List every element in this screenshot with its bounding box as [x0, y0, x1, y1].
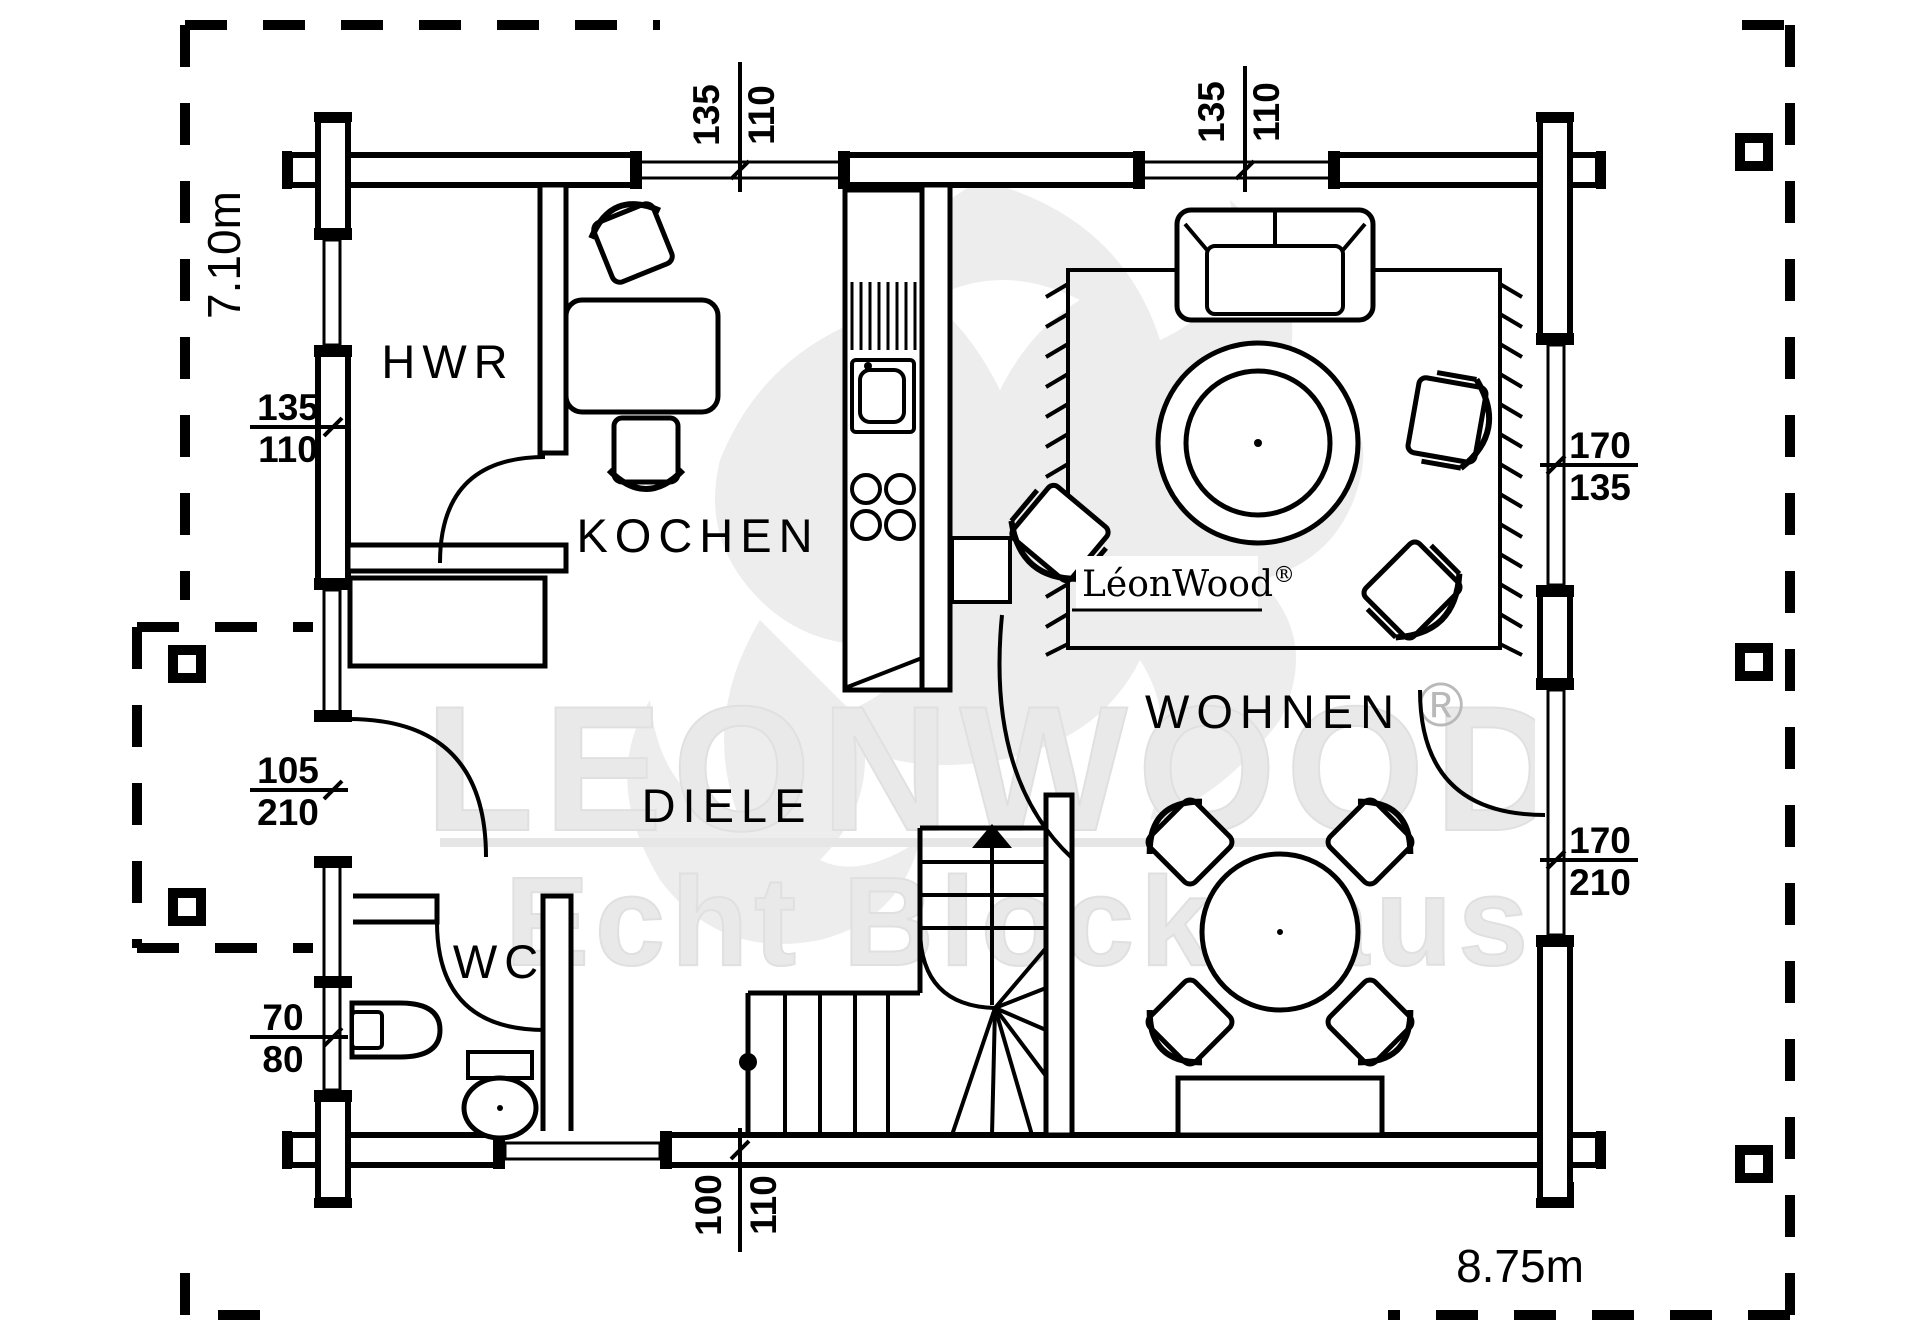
dim-height: 210 — [257, 792, 319, 833]
room-label-diele: DIELE — [642, 779, 813, 832]
post-marker — [1740, 138, 1768, 166]
dim-height: 80 — [262, 1039, 303, 1080]
kitchen-chair — [609, 418, 683, 489]
sofa — [1177, 210, 1373, 320]
sideboard — [1178, 1078, 1382, 1135]
wall-top — [290, 155, 1598, 185]
room-label-wohnen: WOHNEN — [1145, 685, 1401, 738]
wall-bottom — [290, 1135, 1598, 1165]
post-marker — [173, 893, 201, 921]
dim-width: 105 — [257, 750, 319, 791]
watermark-underline — [440, 838, 1390, 847]
room-label-wc: WC — [453, 935, 545, 988]
dim-left-window: 135 110 — [257, 387, 319, 470]
window-left-diele-2 — [324, 866, 340, 978]
wall-kochen-wohnen — [922, 185, 950, 690]
dim-height: 110 — [1246, 82, 1287, 142]
dim-width: 135 — [686, 84, 727, 146]
dim-width: 170 — [1569, 425, 1631, 466]
tv-board — [952, 538, 1010, 602]
stair-newel-post — [739, 1053, 757, 1071]
dim-width: 70 — [262, 997, 303, 1038]
dim-width: 135 — [257, 387, 319, 428]
hall-wardrobe — [350, 578, 545, 666]
wall-hwr-diele — [348, 545, 566, 571]
dim-height: 110 — [258, 429, 318, 470]
terrace-door-glazing — [1548, 690, 1564, 935]
dim-width: 135 — [1191, 81, 1232, 143]
overall-depth-label: 7.10m — [198, 191, 250, 319]
room-label-kochen: KOCHEN — [576, 509, 819, 562]
wall-wc-top — [348, 896, 437, 922]
kitchen-table — [566, 300, 718, 412]
overall-width-label: 8.75m — [1456, 1240, 1584, 1292]
round-rug — [1158, 343, 1358, 543]
kitchen-counter — [845, 190, 922, 690]
post-marker — [173, 650, 201, 678]
wall-wc-right — [543, 896, 571, 1135]
dim-height: 110 — [741, 85, 782, 145]
dim-width: 170 — [1569, 820, 1631, 861]
kitchen-sink-basin — [860, 370, 904, 422]
post-marker — [1740, 1150, 1768, 1178]
logo-registered-symbol: ® — [1273, 563, 1295, 588]
window-left-diele — [324, 590, 340, 712]
toilet-tank — [468, 1052, 532, 1078]
dim-height: 110 — [743, 1175, 784, 1235]
dim-right-window: 170 135 — [1569, 425, 1631, 508]
floor-plan-page: LEONWOOD Echt Blockhaus ® — [0, 0, 1920, 1344]
dim-height: 135 — [1569, 467, 1631, 508]
dim-wc-window: 70 80 — [262, 997, 303, 1080]
floor-plan-svg: LEONWOOD Echt Blockhaus ® — [0, 0, 1920, 1344]
wall-right — [1540, 120, 1570, 1200]
dim-height: 210 — [1569, 862, 1631, 903]
leonwood-plan-logo: LéonWood® — [1072, 556, 1295, 610]
sink-faucet-icon — [864, 362, 872, 370]
svg-text:LéonWood®: LéonWood® — [1082, 563, 1295, 605]
window-top-2 — [1143, 162, 1330, 178]
wall-hwr-kochen — [540, 185, 566, 453]
dim-terrace-door: 170 210 — [1569, 820, 1631, 903]
post-marker — [1740, 648, 1768, 676]
window-left-hwr — [324, 240, 340, 345]
logo-text: LéonWood — [1082, 564, 1273, 605]
room-label-hwr: HWR — [381, 335, 514, 388]
dim-entrance-door: 105 210 — [257, 750, 319, 833]
dim-width: 100 — [688, 1174, 729, 1236]
window-bottom-diele — [505, 1143, 660, 1159]
